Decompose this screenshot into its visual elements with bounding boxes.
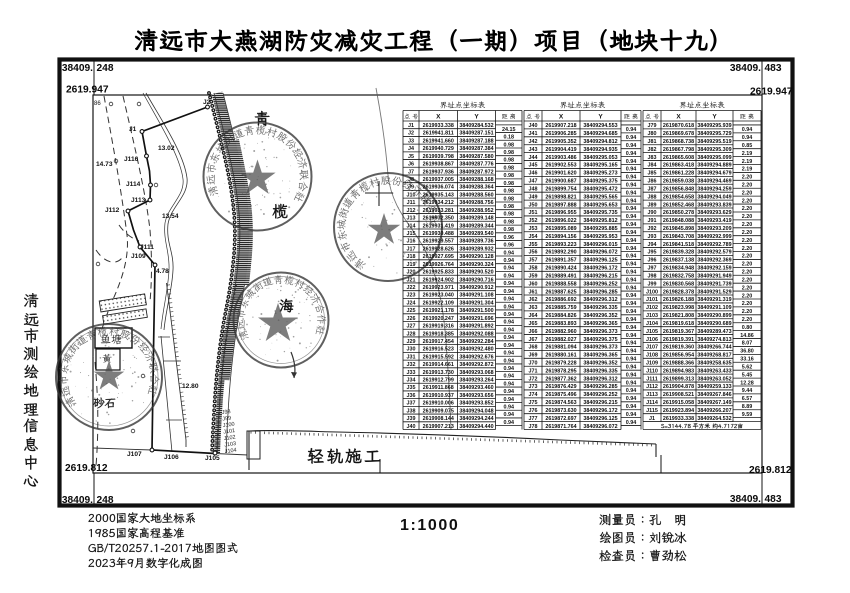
svg-text:38409294.440: 38409294.440 (459, 424, 493, 430)
svg-text:38409292.159: 38409292.159 (697, 266, 731, 272)
svg-text:0.94: 0.94 (626, 135, 637, 141)
svg-text:483: 483 (765, 63, 782, 74)
svg-text:X: X (436, 114, 441, 121)
svg-text:2619928.626: 2619928.626 (423, 246, 454, 252)
svg-text:J37: J37 (407, 401, 416, 407)
svg-text:2619904.419: 2619904.419 (545, 147, 576, 153)
svg-text:0.94: 0.94 (504, 312, 515, 318)
svg-text:38409296.125: 38409296.125 (583, 258, 617, 264)
svg-text:J23: J23 (407, 293, 416, 299)
svg-text:2.20: 2.20 (742, 238, 753, 244)
svg-text:2619832.758: 2619832.758 (663, 273, 694, 279)
svg-text:2619821.808: 2619821.808 (663, 313, 694, 319)
svg-text:0.18: 0.18 (504, 135, 515, 141)
svg-text:2619874.563: 2619874.563 (545, 400, 576, 406)
svg-text:2619875.496: 2619875.496 (545, 392, 576, 398)
svg-text:J107: J107 (127, 451, 142, 458)
svg-text:J28: J28 (407, 331, 416, 337)
svg-text:38409294.679: 38409294.679 (697, 171, 731, 177)
svg-text:38409294.685: 38409294.685 (583, 131, 617, 137)
svg-text:38409258.635: 38409258.635 (697, 360, 731, 366)
svg-text:2619924.902: 2619924.902 (423, 277, 454, 283)
svg-text:9.59: 9.59 (742, 412, 753, 418)
svg-text:J104: J104 (646, 321, 658, 327)
svg-text:2619856.954: 2619856.954 (663, 353, 694, 359)
svg-text:2.20: 2.20 (742, 183, 753, 189)
svg-text:38409295.885: 38409295.885 (583, 226, 617, 232)
svg-text:2619930.488: 2619930.488 (423, 231, 454, 237)
svg-text:38409295.472: 38409295.472 (583, 186, 617, 192)
svg-text:2619902.553: 2619902.553 (545, 163, 576, 169)
svg-text:38409.: 38409. (730, 63, 761, 74)
svg-text:0.94: 0.94 (626, 270, 637, 276)
svg-text:38409296.172: 38409296.172 (583, 408, 617, 414)
svg-text:2619931.419: 2619931.419 (423, 223, 454, 229)
svg-text:J61: J61 (529, 289, 538, 295)
svg-text:38409266.744: 38409266.744 (697, 345, 731, 351)
svg-text:2619870.618: 2619870.618 (663, 123, 694, 129)
svg-text:2619.947: 2619.947 (66, 85, 109, 96)
svg-text:2619.812: 2619.812 (749, 465, 792, 476)
svg-text:2619904.878: 2619904.878 (663, 384, 694, 390)
svg-text:0.94: 0.94 (504, 420, 515, 426)
svg-text:38409292.579: 38409292.579 (697, 250, 731, 256)
svg-text:38409.: 38409. (730, 494, 761, 505)
svg-text:2619830.568: 2619830.568 (663, 281, 694, 287)
svg-text:2619933.338: 2619933.338 (663, 416, 694, 422)
svg-text:点 号: 点 号 (645, 112, 659, 120)
svg-text:0.94: 0.94 (626, 349, 637, 355)
svg-text:86: 86 (94, 101, 101, 107)
svg-text:38409296.072: 38409296.072 (583, 424, 617, 430)
svg-text:2.20: 2.20 (742, 270, 753, 276)
svg-text:0.94: 0.94 (504, 289, 515, 295)
svg-text:0.94: 0.94 (504, 297, 515, 303)
svg-text:2619903.486: 2619903.486 (545, 155, 576, 161)
svg-text:距 离: 距 离 (502, 112, 516, 120)
svg-text:38409290.899: 38409290.899 (697, 313, 731, 319)
svg-text:38409292.676: 38409292.676 (459, 354, 493, 360)
svg-text:38409293.419: 38409293.419 (697, 218, 731, 224)
svg-text:2619.947: 2619.947 (750, 87, 793, 98)
svg-text:2619890.424: 2619890.424 (545, 266, 576, 272)
svg-text:2619933.281: 2619933.281 (423, 208, 454, 214)
svg-text:2619877.362: 2619877.362 (545, 376, 576, 382)
svg-text:38409294.049: 38409294.049 (697, 194, 731, 200)
svg-text:J115: J115 (646, 408, 658, 414)
svg-text:2619837.138: 2619837.138 (663, 258, 694, 264)
svg-text:38409296.285: 38409296.285 (583, 384, 617, 390)
svg-text:248: 248 (97, 63, 114, 74)
svg-text:J80: J80 (648, 131, 657, 137)
svg-text:0.98: 0.98 (504, 158, 515, 164)
svg-text:38409295.735: 38409295.735 (583, 210, 617, 216)
svg-text:38409284.532: 38409284.532 (459, 123, 493, 129)
svg-text:2619819.367: 2619819.367 (663, 329, 694, 335)
svg-text:2619910.006: 2619910.006 (423, 401, 454, 407)
svg-text:0.98: 0.98 (504, 219, 515, 225)
svg-text:2619852.468: 2619852.468 (663, 202, 694, 208)
svg-text:J91: J91 (648, 218, 657, 224)
svg-text:2.20: 2.20 (742, 309, 753, 315)
svg-text:38409274.813: 38409274.813 (697, 337, 731, 343)
svg-text:2.20: 2.20 (742, 246, 753, 252)
svg-text:38409294.048: 38409294.048 (459, 408, 493, 414)
svg-text:38409294.889: 38409294.889 (697, 163, 731, 169)
svg-text:0.94: 0.94 (626, 214, 637, 220)
svg-text:38409295.273: 38409295.273 (583, 171, 617, 177)
svg-text:38409295.165: 38409295.165 (583, 163, 617, 169)
svg-text:2619883.893: 2619883.893 (545, 321, 576, 327)
svg-text:38409296.352: 38409296.352 (583, 313, 617, 319)
svg-text:J45: J45 (529, 163, 538, 169)
svg-text:J54: J54 (529, 234, 538, 240)
svg-text:J97: J97 (648, 266, 657, 272)
svg-text:2619915.058: 2619915.058 (663, 400, 694, 406)
svg-text:J69: J69 (529, 353, 538, 359)
svg-text:2619937.936: 2619937.936 (423, 169, 454, 175)
svg-text:J35: J35 (407, 385, 416, 391)
svg-text:J93: J93 (648, 234, 657, 240)
svg-text:2619939.798: 2619939.798 (423, 154, 454, 160)
svg-text:2619839.328: 2619839.328 (663, 250, 694, 256)
svg-text:2619932.350: 2619932.350 (423, 216, 454, 222)
svg-text:2619850.278: 2619850.278 (663, 210, 694, 216)
svg-text:J26: J26 (407, 316, 416, 322)
svg-text:2619880.161: 2619880.161 (545, 353, 576, 359)
svg-text:38409267.846: 38409267.846 (697, 392, 731, 398)
svg-text:2619889.491: 2619889.491 (545, 273, 576, 279)
svg-text:J2: J2 (203, 99, 211, 106)
svg-text:J81: J81 (648, 139, 657, 145)
svg-text:2619899.754: 2619899.754 (545, 186, 576, 192)
svg-text:38409296.015: 38409296.015 (583, 242, 617, 248)
svg-text:38409296.375: 38409296.375 (583, 337, 617, 343)
svg-text:38409294.812: 38409294.812 (583, 139, 617, 145)
svg-text:J78: J78 (529, 424, 538, 430)
svg-text:2619927.695: 2619927.695 (423, 254, 454, 260)
svg-text:0.98: 0.98 (504, 173, 515, 179)
svg-text:J62: J62 (529, 297, 538, 303)
svg-text:J1: J1 (129, 126, 137, 133)
svg-text:2619916.523: 2619916.523 (423, 347, 454, 353)
svg-text:0.94: 0.94 (626, 293, 637, 299)
svg-text:点 号: 点 号 (404, 112, 418, 120)
svg-text:距 离: 距 离 (624, 112, 638, 120)
svg-text:J111: J111 (646, 376, 657, 382)
svg-text:J111: J111 (140, 244, 154, 251)
svg-text:38409264.532: 38409264.532 (697, 416, 731, 422)
svg-text:38409296.335: 38409296.335 (583, 305, 617, 311)
svg-text:38409295.729: 38409295.729 (697, 131, 731, 137)
svg-text:2.20: 2.20 (742, 254, 753, 260)
svg-text:2619923.971: 2619923.971 (423, 285, 454, 291)
svg-text:38409296.365: 38409296.365 (583, 321, 617, 327)
svg-text:距 离: 距 离 (740, 112, 754, 120)
svg-text:J59: J59 (529, 273, 538, 279)
svg-text:2619920.247: 2619920.247 (423, 316, 454, 322)
svg-text:13.02: 13.02 (158, 145, 175, 152)
svg-text:J83: J83 (648, 155, 657, 161)
svg-text:12.28: 12.28 (740, 380, 754, 386)
svg-text:38409293.839: 38409293.839 (697, 202, 731, 208)
svg-text:38409288.168: 38409288.168 (459, 177, 493, 183)
svg-text:2619863.418: 2619863.418 (663, 163, 694, 169)
svg-text:38409295.099: 38409295.099 (697, 155, 731, 161)
svg-text:0.94: 0.94 (626, 420, 637, 426)
svg-text:0.94: 0.94 (626, 388, 637, 394)
svg-text:38409294.244: 38409294.244 (459, 416, 493, 422)
svg-text:2.20: 2.20 (742, 277, 753, 283)
svg-text:J49: J49 (529, 194, 538, 200)
svg-text:38409291.529: 38409291.529 (697, 289, 731, 295)
svg-text:0.94: 0.94 (504, 281, 515, 287)
svg-text:8.89: 8.89 (742, 404, 753, 410)
svg-text:0.96: 0.96 (504, 235, 515, 241)
svg-text:5.62: 5.62 (742, 364, 753, 370)
svg-text:38409290.520: 38409290.520 (459, 270, 493, 276)
svg-text:J103: J103 (646, 313, 658, 319)
svg-text:J20: J20 (407, 270, 416, 276)
svg-text:J64: J64 (529, 313, 538, 319)
svg-text:0.94: 0.94 (626, 333, 637, 339)
svg-text:38409293.209: 38409293.209 (697, 226, 731, 232)
svg-text:2619856.848: 2619856.848 (663, 186, 694, 192)
svg-text:38409289.540: 38409289.540 (459, 231, 493, 237)
svg-text:2.20: 2.20 (742, 317, 753, 323)
svg-text:J96: J96 (648, 258, 657, 264)
svg-text:J67: J67 (529, 337, 538, 343)
svg-text:J55: J55 (529, 242, 538, 248)
svg-text:S=3144.78 平方米 约4.7172亩: S=3144.78 平方米 约4.7172亩 (661, 422, 744, 430)
svg-text:0.94: 0.94 (504, 358, 515, 364)
svg-text:36.80: 36.80 (740, 349, 754, 355)
svg-text:0.94: 0.94 (626, 341, 637, 347)
svg-text:2619871.764: 2619871.764 (545, 424, 576, 430)
svg-text:38409288.560: 38409288.560 (459, 192, 493, 198)
svg-text:2619936.074: 2619936.074 (423, 185, 454, 191)
svg-text:0.94: 0.94 (504, 343, 515, 349)
svg-text:2619908.144: 2619908.144 (423, 416, 454, 422)
svg-text:0.94: 0.94 (626, 357, 637, 363)
svg-text:J39: J39 (407, 416, 416, 422)
svg-text:J30: J30 (407, 347, 416, 353)
svg-text:J52: J52 (529, 218, 538, 224)
svg-text:2619941.660: 2619941.660 (423, 138, 454, 144)
svg-text:6.57: 6.57 (742, 396, 753, 402)
svg-text:0.94: 0.94 (626, 230, 637, 236)
svg-text:38409291.949: 38409291.949 (697, 273, 731, 279)
svg-text:J113: J113 (646, 392, 658, 398)
svg-text:38409292.999: 38409292.999 (697, 234, 731, 240)
svg-text:0.94: 0.94 (504, 397, 515, 403)
svg-text:2619913.730: 2619913.730 (423, 370, 454, 376)
svg-text:2619896.022: 2619896.022 (545, 218, 576, 224)
svg-text:0.98: 0.98 (504, 142, 515, 148)
svg-text:38409290.128: 38409290.128 (459, 254, 493, 260)
svg-text:38409291.739: 38409291.739 (697, 281, 731, 287)
svg-text:2.19: 2.19 (742, 167, 753, 173)
svg-text:38409290.716: 38409290.716 (459, 277, 493, 283)
svg-text:38409289.344: 38409289.344 (459, 223, 493, 229)
svg-text:J112: J112 (105, 207, 120, 214)
svg-text:J46: J46 (529, 171, 538, 177)
svg-text:38409293.656: 38409293.656 (459, 393, 493, 399)
svg-text:38409292.088: 38409292.088 (459, 331, 493, 337)
svg-text:38409268.817: 38409268.817 (697, 353, 731, 359)
svg-text:2619873.630: 2619873.630 (545, 408, 576, 414)
svg-text:38409295.812: 38409295.812 (583, 218, 617, 224)
svg-text:0.98: 0.98 (504, 181, 515, 187)
svg-text:2619861.228: 2619861.228 (663, 171, 694, 177)
svg-text:2619933.338: 2619933.338 (423, 123, 454, 129)
svg-text:2619894.983: 2619894.983 (663, 368, 694, 374)
svg-text:38409295.375: 38409295.375 (583, 179, 617, 185)
svg-text:2619884.826: 2619884.826 (545, 313, 576, 319)
svg-text:2619897.888: 2619897.888 (545, 202, 576, 208)
svg-text:0.94: 0.94 (626, 262, 637, 268)
svg-text:38409293.068: 38409293.068 (459, 370, 493, 376)
svg-text:J34: J34 (407, 378, 416, 384)
svg-text:14.86: 14.86 (740, 333, 754, 339)
svg-text:0.94: 0.94 (504, 258, 515, 264)
svg-text:0.94: 0.94 (626, 309, 637, 315)
svg-text:2619905.352: 2619905.352 (545, 139, 576, 145)
svg-text:2619869.678: 2619869.678 (663, 131, 694, 137)
svg-text:J86: J86 (648, 179, 657, 185)
svg-text:2.20: 2.20 (742, 175, 753, 181)
svg-text:24.15: 24.15 (502, 127, 516, 133)
svg-text:5.45: 5.45 (742, 372, 753, 378)
svg-text:2619906.285: 2619906.285 (545, 131, 576, 137)
svg-text:38409296.373: 38409296.373 (583, 329, 617, 335)
svg-text:J1: J1 (408, 123, 414, 129)
svg-text:38409296.285: 38409296.285 (583, 289, 617, 295)
svg-text:J76: J76 (529, 408, 538, 414)
svg-text:J58: J58 (529, 266, 538, 272)
svg-text:J22: J22 (407, 285, 416, 291)
svg-text:2619879.228: 2619879.228 (545, 360, 576, 366)
svg-text:界址点坐标表: 界址点坐标表 (679, 101, 725, 111)
svg-text:38409295.519: 38409295.519 (697, 139, 731, 145)
svg-text:2.20: 2.20 (742, 293, 753, 299)
svg-text:2619907.218: 2619907.218 (545, 123, 576, 129)
svg-text:2619901.620: 2619901.620 (545, 171, 576, 177)
svg-text:2619938.867: 2619938.867 (423, 162, 454, 168)
svg-text:38409296.365: 38409296.365 (583, 353, 617, 359)
svg-text:2619893.223: 2619893.223 (545, 242, 576, 248)
svg-text:J110: J110 (646, 368, 658, 374)
svg-text:2619935.143: 2619935.143 (423, 192, 454, 198)
svg-text:0.98: 0.98 (504, 196, 515, 202)
svg-text:38409296.072: 38409296.072 (583, 250, 617, 256)
svg-text:2.20: 2.20 (742, 262, 753, 268)
svg-text:0.94: 0.94 (626, 127, 637, 133)
svg-text:38409291.892: 38409291.892 (459, 324, 493, 330)
svg-text:J60: J60 (529, 281, 538, 287)
svg-text:38409.: 38409. (62, 63, 93, 74)
svg-text:2619828.378: 2619828.378 (663, 289, 694, 295)
svg-text:J105: J105 (646, 329, 658, 335)
svg-text:J11: J11 (407, 200, 416, 206)
svg-text:0.94: 0.94 (742, 135, 753, 141)
svg-text:38409295.565: 38409295.565 (583, 194, 617, 200)
svg-text:J57: J57 (529, 258, 538, 264)
svg-text:2619887.625: 2619887.625 (545, 289, 576, 295)
svg-text:J92: J92 (648, 226, 657, 232)
svg-text:J27: J27 (407, 324, 416, 330)
svg-text:J16: J16 (407, 239, 416, 245)
svg-text:2.20: 2.20 (742, 190, 753, 196)
svg-text:0.85: 0.85 (742, 143, 753, 149)
svg-text:4.78: 4.78 (156, 268, 169, 275)
svg-text:38409296.335: 38409296.335 (583, 368, 617, 374)
svg-text:J101: J101 (646, 297, 658, 303)
svg-text:J68: J68 (529, 345, 538, 351)
svg-text:0.94: 0.94 (626, 206, 637, 212)
svg-text:0.98: 0.98 (504, 227, 515, 233)
svg-text:2619892.290: 2619892.290 (545, 250, 576, 256)
svg-text:2619868.738: 2619868.738 (663, 139, 694, 145)
svg-text:2619908.521: 2619908.521 (663, 392, 694, 398)
svg-text:2619859.038: 2619859.038 (663, 179, 694, 185)
svg-text:J47: J47 (529, 179, 538, 185)
svg-text:0.94: 0.94 (626, 317, 637, 323)
svg-text:38409291.696: 38409291.696 (459, 316, 493, 322)
svg-text:J24: J24 (407, 300, 416, 306)
svg-text:2619881.094: 2619881.094 (545, 345, 576, 351)
svg-text:0.94: 0.94 (504, 381, 515, 387)
svg-text:2.20: 2.20 (742, 301, 753, 307)
svg-text:0.98: 0.98 (504, 212, 515, 218)
svg-text:38409292.872: 38409292.872 (459, 362, 493, 368)
svg-text:2619848.088: 2619848.088 (663, 218, 694, 224)
svg-text:9.44: 9.44 (742, 388, 753, 394)
svg-text:38409287.151: 38409287.151 (459, 131, 493, 137)
svg-text:J71: J71 (529, 368, 538, 374)
svg-text:38409292.480: 38409292.480 (459, 347, 493, 353)
svg-text:J85: J85 (648, 171, 657, 177)
svg-text:38409290.689: 38409290.689 (697, 321, 731, 327)
svg-text:J21: J21 (407, 277, 416, 283)
svg-text:38409296.312: 38409296.312 (583, 376, 617, 382)
svg-text:12.80: 12.80 (182, 383, 199, 390)
svg-text:38409294.259: 38409294.259 (697, 186, 731, 192)
svg-text:2.20: 2.20 (742, 214, 753, 220)
svg-text:2619923.040: 2619923.040 (423, 293, 454, 299)
svg-text:J109: J109 (131, 253, 146, 260)
svg-text:2619843.708: 2619843.708 (663, 234, 694, 240)
svg-text:38409291.319: 38409291.319 (697, 297, 731, 303)
svg-text:J2: J2 (408, 131, 414, 137)
svg-text:J53: J53 (529, 226, 538, 232)
svg-text:0.94: 0.94 (626, 198, 637, 204)
svg-text:J8: J8 (408, 177, 414, 183)
svg-text:38409292.284: 38409292.284 (459, 339, 493, 345)
svg-text:J82: J82 (648, 147, 657, 153)
svg-text:2619872.697: 2619872.697 (545, 416, 576, 422)
svg-text:J100: J100 (646, 289, 658, 295)
svg-text:13.54: 13.54 (162, 213, 179, 220)
svg-text:0.94: 0.94 (626, 285, 637, 291)
svg-text:J42: J42 (529, 139, 538, 145)
svg-text:2619914.661: 2619914.661 (423, 362, 454, 368)
svg-text:38409296.125: 38409296.125 (583, 416, 617, 422)
svg-text:J79: J79 (648, 123, 657, 129)
svg-text:界址点坐标表: 界址点坐标表 (560, 101, 606, 111)
svg-text:2619921.178: 2619921.178 (423, 308, 454, 314)
svg-text:2619819.618: 2619819.618 (663, 321, 694, 327)
